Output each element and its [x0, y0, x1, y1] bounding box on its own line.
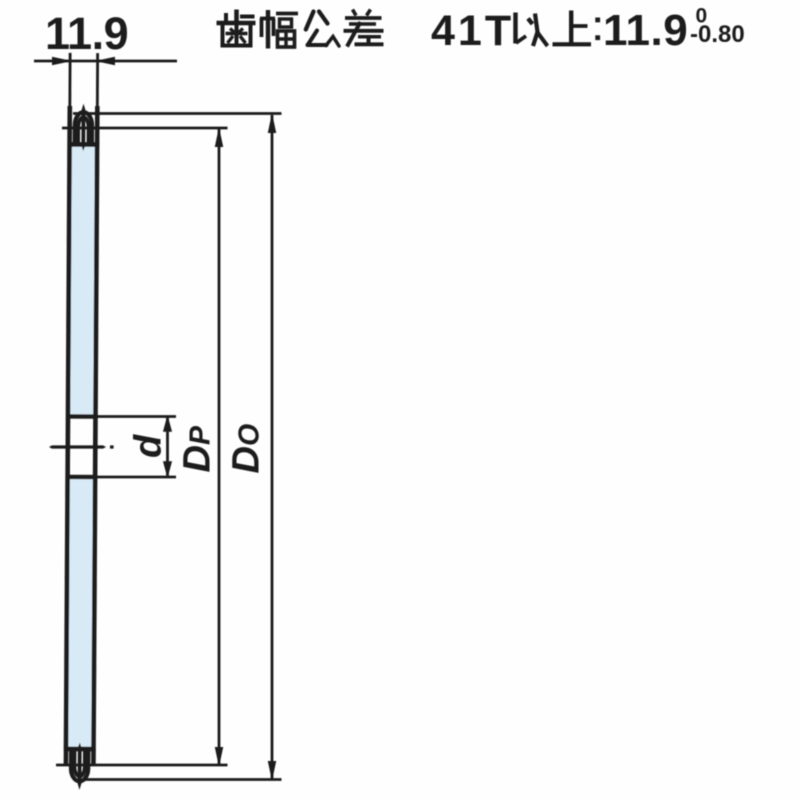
svg-text:-0.80: -0.80: [690, 21, 745, 48]
svg-text:d: d: [128, 434, 170, 458]
svg-text:41T: 41T: [431, 7, 514, 55]
svg-text:11.9: 11.9: [45, 8, 128, 59]
svg-text:11.9: 11.9: [603, 6, 688, 55]
